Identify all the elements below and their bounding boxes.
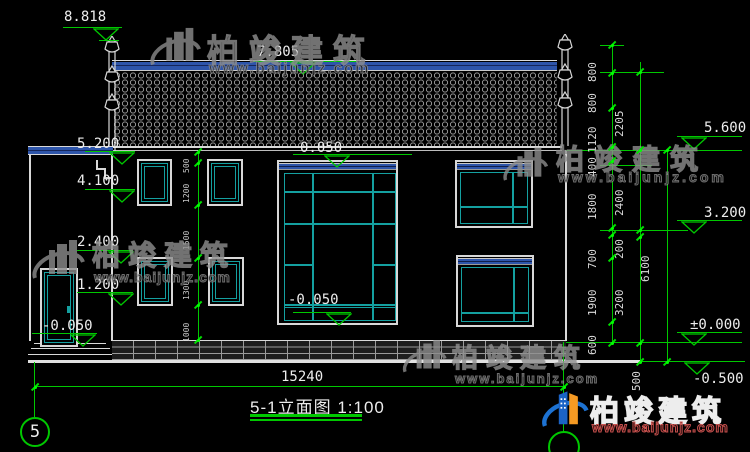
dim-value: 800 [586, 93, 599, 113]
dim-node [611, 107, 614, 110]
level-label-door-ground: -0.050 [42, 318, 93, 334]
level-label-3200: 3.200 [704, 205, 746, 221]
window-lower-right [456, 255, 534, 327]
brand-logo-icon [538, 384, 590, 442]
step-2 [31, 348, 110, 349]
dim-node [611, 160, 614, 163]
axis-line-left [34, 362, 35, 417]
level-label-finial: 8.818 [64, 9, 106, 25]
watermark-url: www.baijunjz.com [209, 60, 370, 77]
dim-node [611, 321, 614, 324]
dim-node [611, 44, 614, 47]
watermark-text: 柏竣建筑 [92, 234, 236, 274]
level-label-annex-roof: 5.200 [77, 136, 119, 152]
title-underline-2 [250, 419, 362, 421]
dim-value: 1200 [182, 184, 191, 203]
dim-node [611, 342, 614, 345]
window-upper-left-2 [207, 159, 243, 206]
dim-value: 2400 [613, 190, 626, 217]
dim-value: 500 [182, 159, 191, 173]
dim-node [639, 236, 642, 239]
step-3 [28, 354, 112, 355]
dim-value: 2205 [613, 111, 626, 138]
window-upper-left-1 [137, 159, 172, 206]
dim-node [197, 204, 200, 207]
level-label-4100: 4.100 [77, 173, 119, 189]
dim-value: 6100 [639, 256, 652, 283]
dim-node [639, 71, 642, 74]
right-roof-finial-icon [553, 34, 577, 146]
left-roof-finial-icon [100, 36, 124, 152]
dim-value: 1800 [586, 194, 599, 221]
level-label-zero: ±0.000 [690, 317, 741, 333]
axis-bubble-5: 5 [20, 417, 50, 447]
title-underline [250, 414, 362, 417]
dim-node [34, 386, 37, 389]
dim-value: 1900 [586, 290, 599, 317]
dim-node [639, 342, 642, 345]
watermark-logo-icon [143, 26, 209, 78]
brand-url: www.baijunjz.com [592, 419, 729, 435]
watermark-logo-icon [28, 238, 90, 292]
watermark-url: www.baijunjz.com [558, 169, 727, 185]
watermark-logo-icon [400, 336, 450, 386]
right-dim-chain-2 [640, 62, 641, 362]
door-handle [67, 306, 70, 313]
dim-value: 3200 [613, 290, 626, 317]
level-label-right-eave: 5.600 [704, 120, 746, 136]
dim-node [611, 234, 614, 237]
overall-width-value: 15240 [281, 369, 323, 385]
dim-node [611, 227, 614, 230]
watermark-logo-icon [498, 146, 554, 192]
dim-value: 200 [613, 239, 626, 259]
dim-node [197, 162, 200, 165]
dim-node [666, 149, 669, 152]
overall-dim-line [35, 386, 564, 387]
level-label-lobby-floor: -0.050 [288, 292, 339, 308]
dim-node [197, 151, 200, 154]
dim-node [611, 257, 614, 260]
dim-value: 700 [586, 249, 599, 269]
dim-node [639, 229, 642, 232]
dim-value: 800 [586, 62, 599, 82]
dim-node [666, 361, 669, 364]
dim-node [197, 304, 200, 307]
dim-node [197, 339, 200, 342]
dim-node [197, 257, 200, 260]
dim-node [611, 146, 614, 149]
dim-node [639, 361, 642, 364]
dim-node [611, 72, 614, 75]
axis-number: 5 [30, 422, 40, 442]
roof-tiles [113, 72, 557, 146]
elevation-drawing-canvas: 8.818 7.805 0.050 5.200 4.100 2.400 1.20… [0, 0, 750, 452]
watermark-url: www.baijunjz.com [94, 269, 231, 285]
dim-value: 1000 [182, 323, 191, 342]
level-label-eave: 0.050 [300, 140, 342, 156]
watermark-text: 柏竣建筑 [452, 338, 588, 375]
dim-node [639, 149, 642, 152]
